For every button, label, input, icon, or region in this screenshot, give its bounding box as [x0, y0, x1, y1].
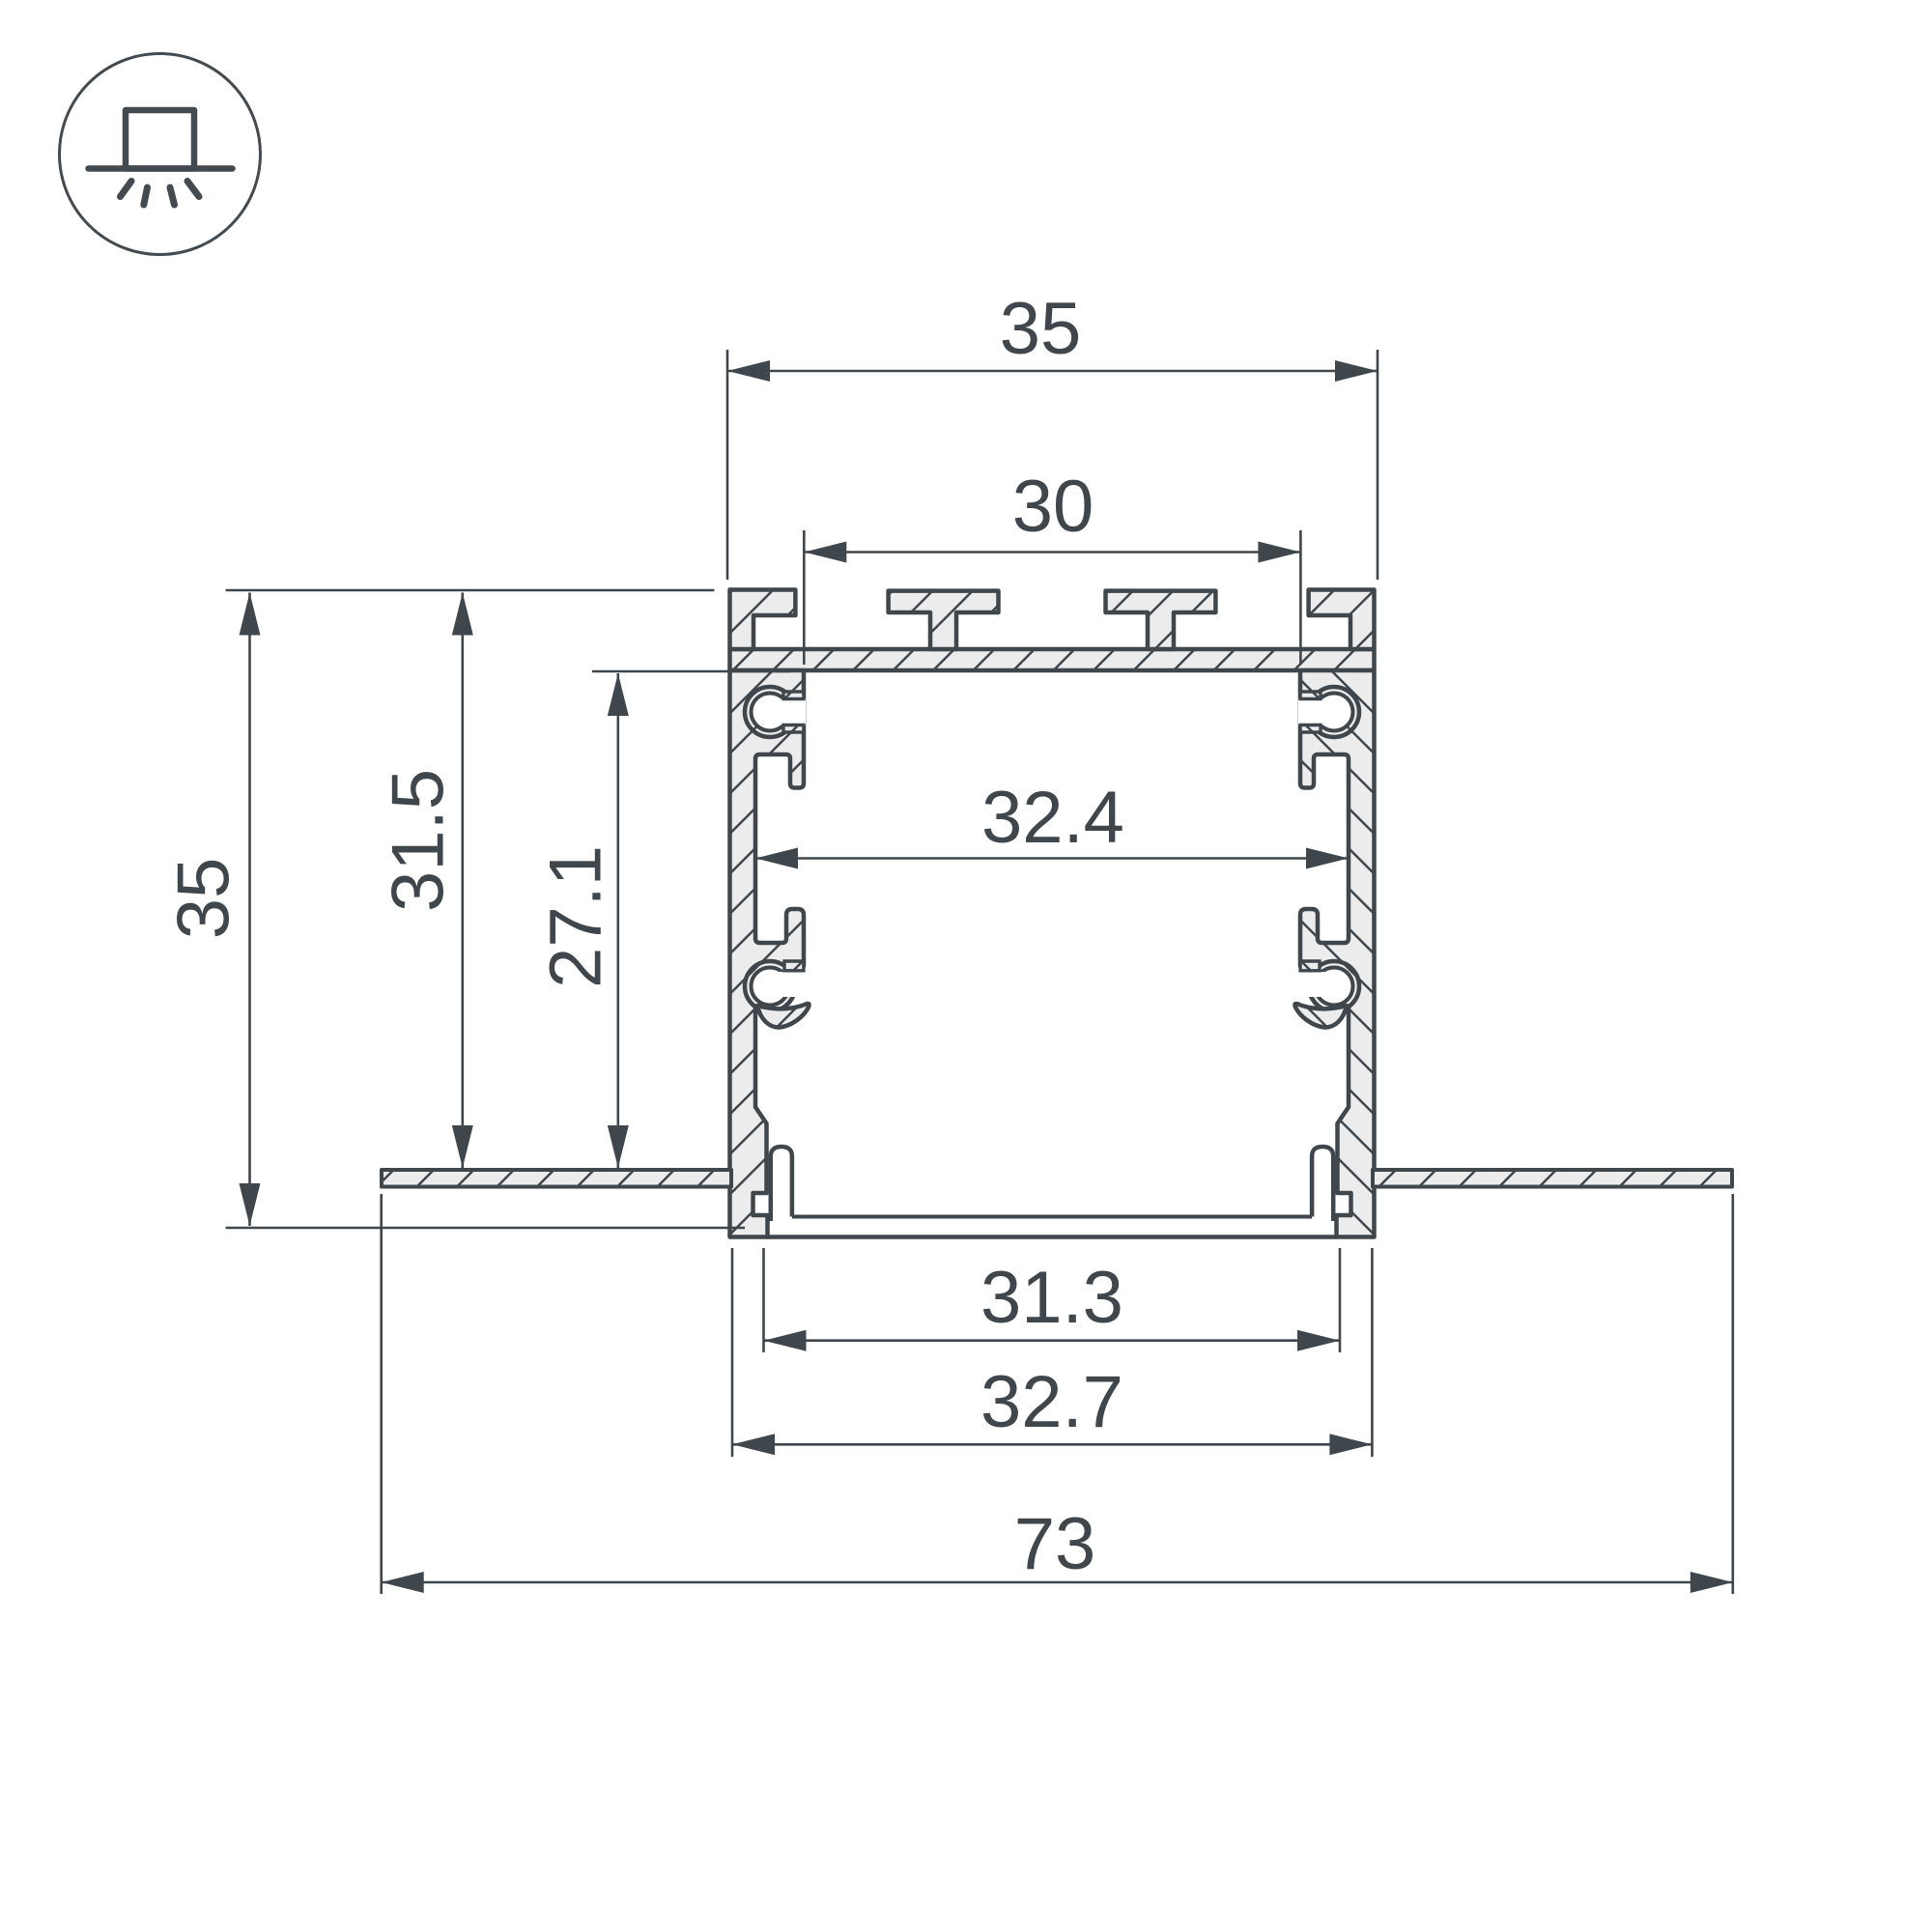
svg-text:27.1: 27.1: [535, 845, 617, 988]
svg-text:73: 73: [1014, 1503, 1096, 1585]
svg-text:35: 35: [163, 858, 245, 940]
svg-text:35: 35: [1000, 288, 1082, 370]
svg-text:31.5: 31.5: [378, 769, 460, 912]
svg-text:32.7: 32.7: [980, 1361, 1123, 1443]
svg-text:30: 30: [1012, 466, 1094, 548]
svg-text:31.3: 31.3: [980, 1257, 1123, 1339]
svg-text:32.4: 32.4: [981, 777, 1124, 859]
